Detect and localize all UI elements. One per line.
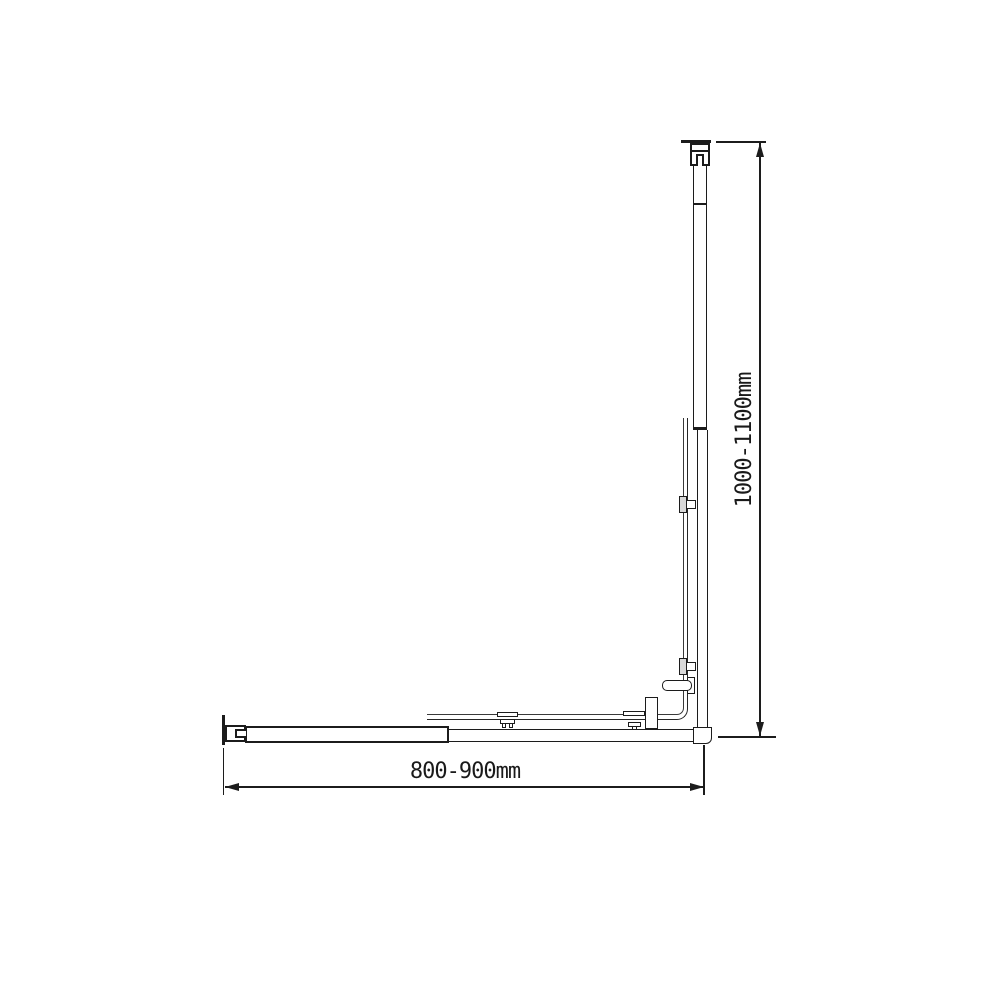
height-dim-line xyxy=(759,143,761,736)
width-dim-label: 800-900mm xyxy=(365,760,565,784)
support-bar xyxy=(693,166,707,430)
vertical-rail xyxy=(697,430,708,727)
bottom-rail-right-section xyxy=(447,729,696,742)
corner-connector-block xyxy=(693,727,712,744)
support-bar-joint-line xyxy=(694,203,706,205)
height-dim-label: 1000-1100mm xyxy=(731,360,759,520)
width-dim-ext-left xyxy=(223,748,225,795)
glass-clamp-mid-leg2 xyxy=(509,723,513,728)
glass-clamp-upper-tab xyxy=(686,500,696,509)
glass-panel-outline-inner xyxy=(427,418,684,715)
glass-clamp-mid-leg1 xyxy=(502,723,506,728)
wall-bracket-notch xyxy=(235,729,246,738)
glass-clamp-lower xyxy=(679,658,687,675)
ceiling-bracket-notch xyxy=(696,154,704,166)
corner-screen-diagram: 1000-1100mm 800-900mm xyxy=(0,0,1000,1000)
width-dim-line xyxy=(225,786,704,788)
ceiling-bracket-shelf-line xyxy=(691,150,709,152)
glass-clamp-left-plate xyxy=(623,711,645,716)
corner-handle xyxy=(662,680,692,691)
glass-clamp-mid-plate xyxy=(497,712,518,717)
width-dim-arrow-left xyxy=(225,783,239,791)
height-dim-arrow-bottom xyxy=(756,722,764,736)
glass-clamp-lower-tab xyxy=(686,662,696,671)
height-dim-arrow-top xyxy=(756,143,764,157)
bottom-rail-left-section xyxy=(245,726,449,743)
floor-bracket xyxy=(645,697,658,729)
width-dim-arrow-right xyxy=(690,783,704,791)
height-dim-tick-bottom xyxy=(718,736,776,738)
glass-clamp-upper xyxy=(679,496,687,513)
page: 1000-1100mm 800-900mm xyxy=(0,0,1000,1000)
